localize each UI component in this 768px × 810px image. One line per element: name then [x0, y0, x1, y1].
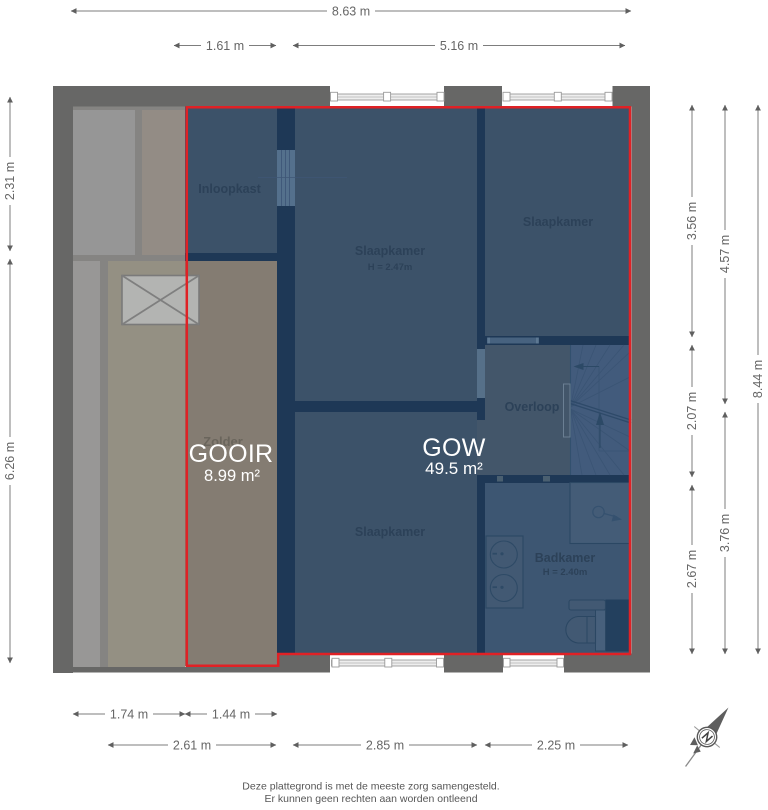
svg-text:49.5 m²: 49.5 m²: [425, 459, 483, 478]
svg-text:2.67 m: 2.67 m: [685, 550, 699, 588]
svg-text:Inloopkast: Inloopkast: [198, 182, 261, 196]
svg-text:H = 2.40m: H = 2.40m: [543, 567, 588, 578]
svg-text:2.85 m: 2.85 m: [366, 739, 404, 753]
svg-text:2.25 m: 2.25 m: [537, 739, 575, 753]
svg-text:8.99 m²: 8.99 m²: [204, 467, 260, 485]
svg-text:4.57 m: 4.57 m: [718, 235, 732, 273]
svg-text:8.63 m: 8.63 m: [332, 5, 370, 19]
svg-text:8.44 m: 8.44 m: [751, 360, 765, 398]
svg-text:1.44 m: 1.44 m: [212, 708, 250, 722]
svg-text:2.07 m: 2.07 m: [685, 392, 699, 430]
svg-text:6.26 m: 6.26 m: [3, 442, 17, 480]
svg-text:2.31 m: 2.31 m: [3, 162, 17, 200]
svg-text:Deze plattegrond is met de mee: Deze plattegrond is met de meeste zorg s…: [242, 781, 499, 793]
svg-text:3.56 m: 3.56 m: [685, 202, 699, 240]
svg-text:1.61 m: 1.61 m: [206, 39, 244, 53]
svg-text:Slaapkamer: Slaapkamer: [355, 244, 425, 258]
svg-text:3.76 m: 3.76 m: [718, 514, 732, 552]
svg-text:2.61 m: 2.61 m: [173, 739, 211, 753]
svg-text:Badkamer: Badkamer: [535, 551, 596, 565]
svg-text:GOW: GOW: [422, 434, 485, 462]
svg-text:GOOIR: GOOIR: [189, 440, 274, 468]
svg-text:H = 2.47m: H = 2.47m: [368, 262, 413, 273]
svg-text:Er kunnen geen rechten aan wor: Er kunnen geen rechten aan worden ontlee…: [264, 793, 477, 805]
svg-text:1.74 m: 1.74 m: [110, 708, 148, 722]
svg-text:Overloop: Overloop: [505, 400, 560, 414]
svg-text:Slaapkamer: Slaapkamer: [523, 215, 593, 229]
svg-text:5.16 m: 5.16 m: [440, 39, 478, 53]
svg-text:Slaapkamer: Slaapkamer: [355, 525, 425, 539]
